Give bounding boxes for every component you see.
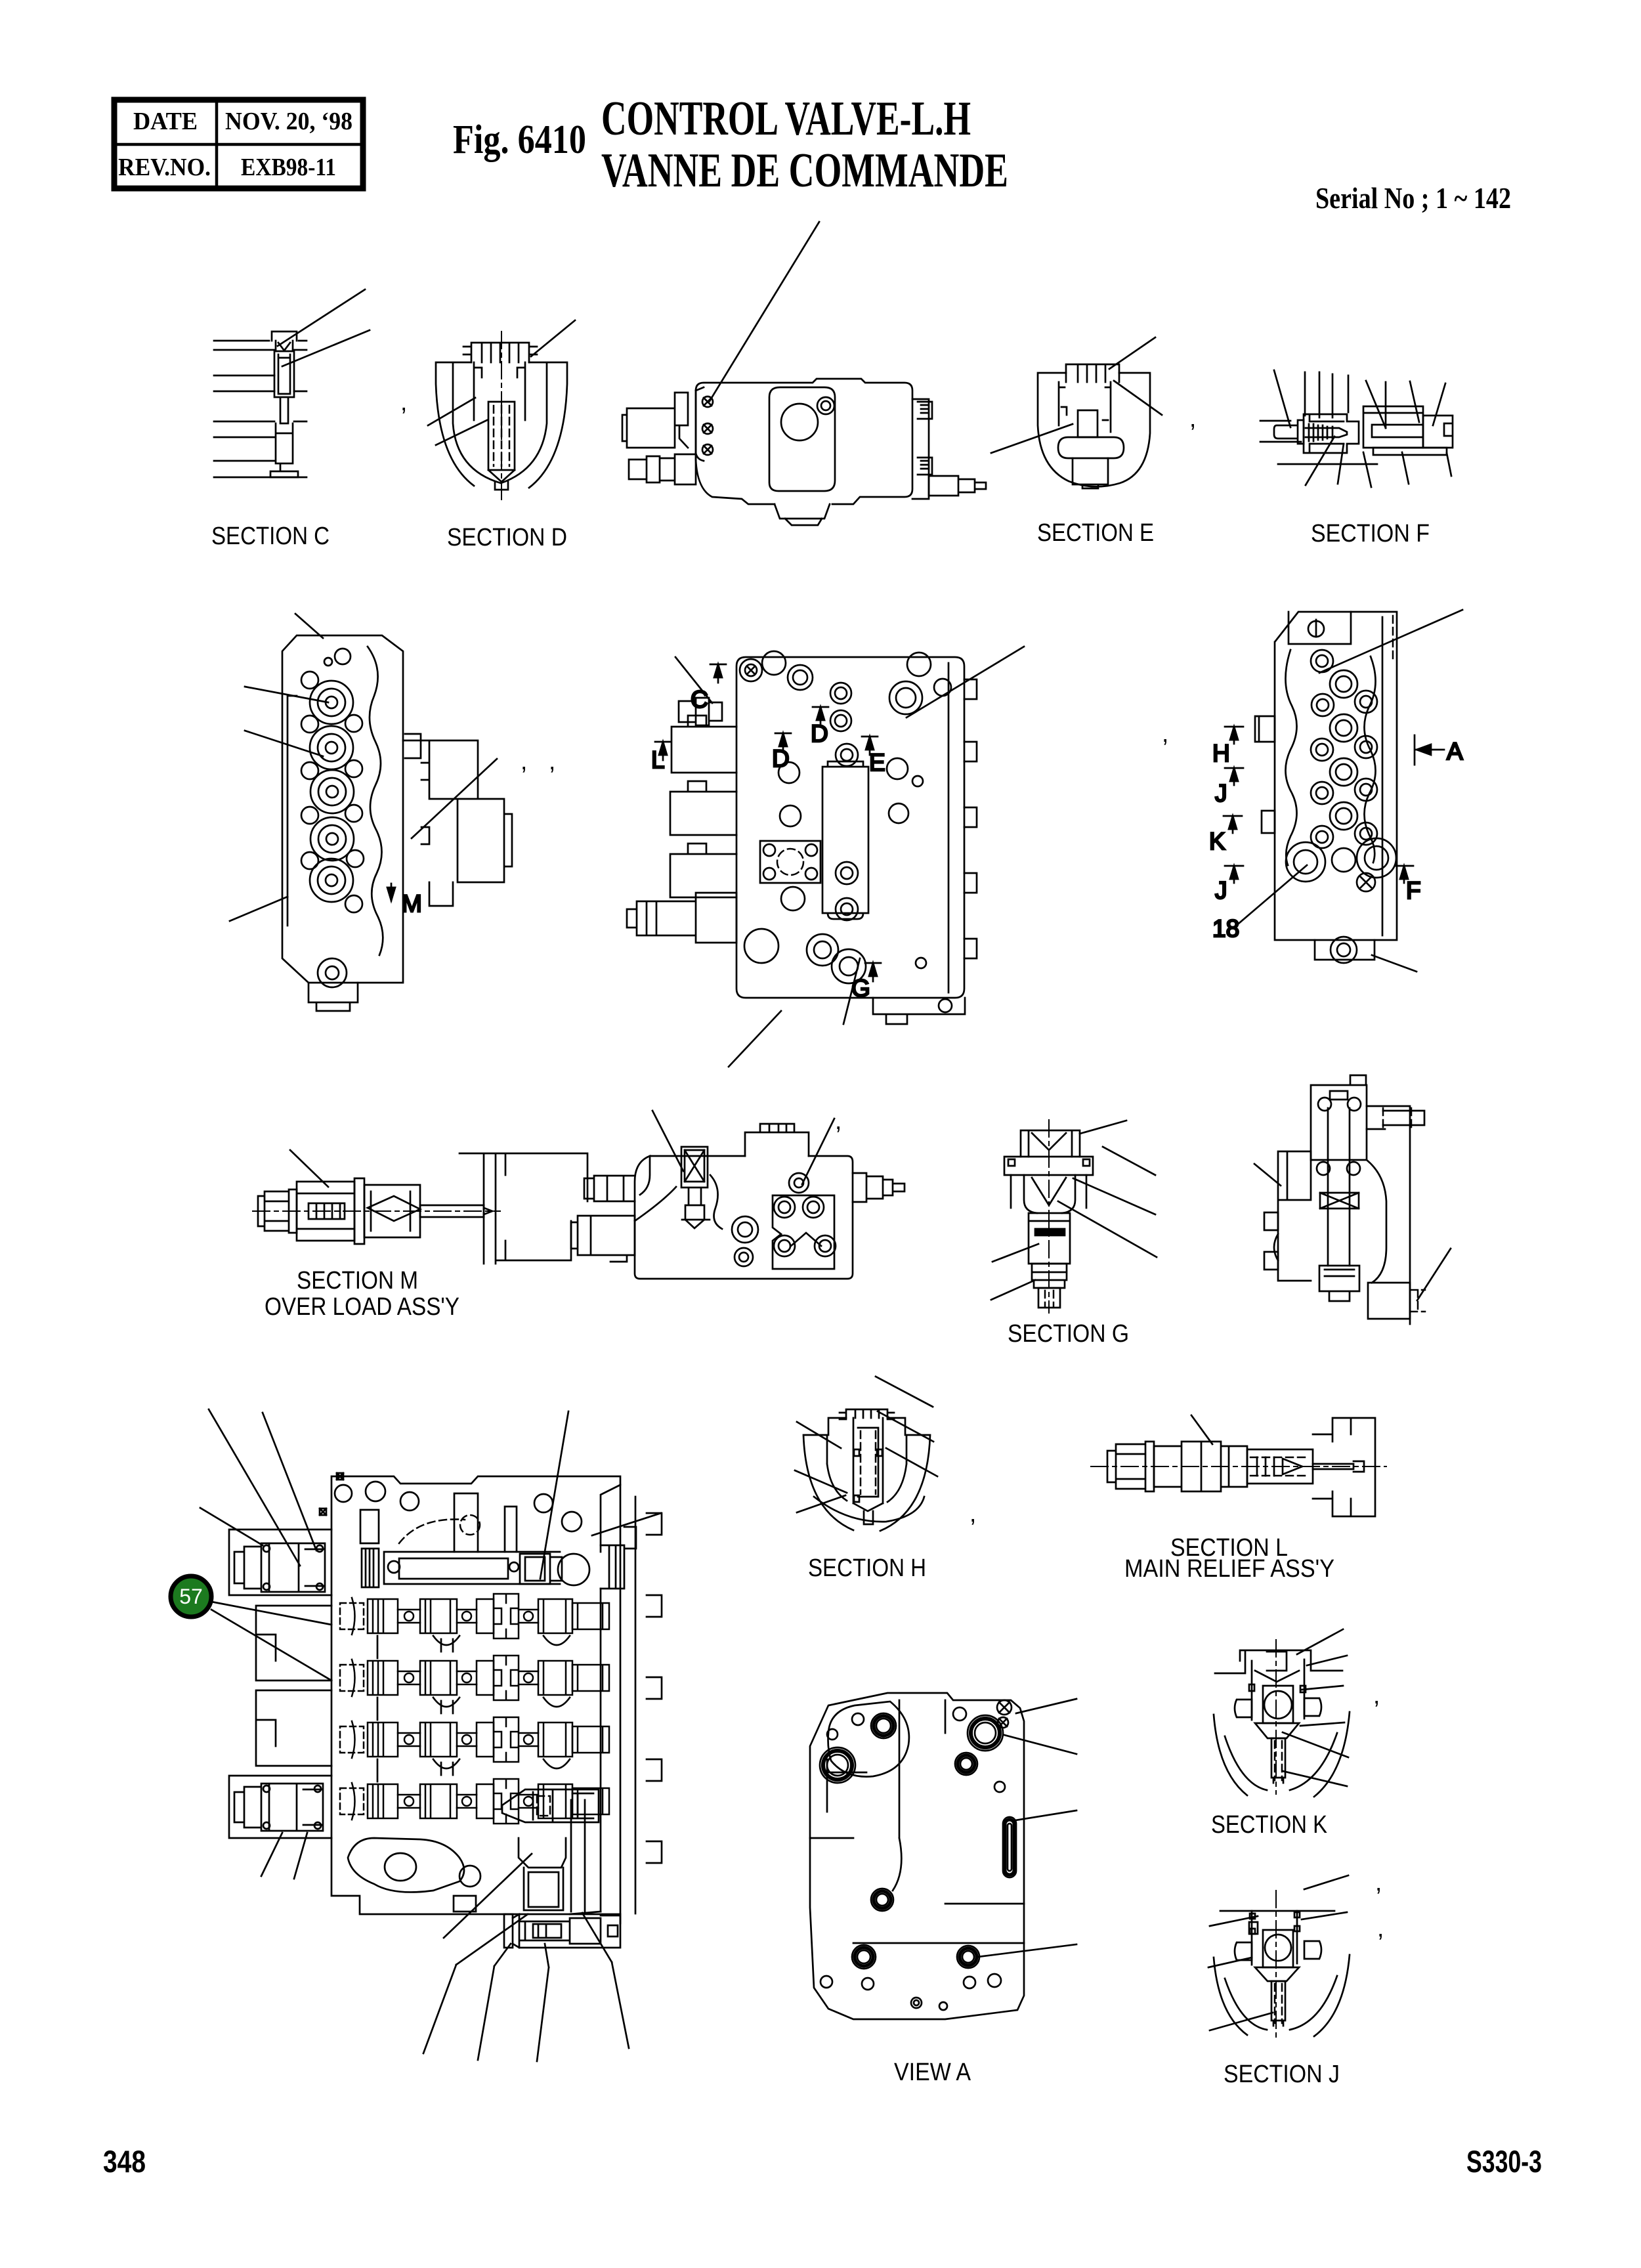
svg-text:E: E (869, 749, 885, 776)
svg-text:Fig. 6410: Fig. 6410 (453, 118, 586, 162)
svg-text:H: H (1212, 740, 1230, 767)
svg-text:,: , (400, 389, 407, 416)
svg-text:,: , (1373, 1682, 1380, 1709)
svg-text:VANNE DE COMMANDE: VANNE DE COMMANDE (601, 144, 1008, 198)
svg-text:,: , (1375, 1869, 1382, 1896)
svg-text:F: F (1406, 877, 1421, 904)
svg-text:348: 348 (103, 2144, 146, 2179)
svg-text:,: , (549, 748, 555, 775)
svg-text:EXB98-11: EXB98-11 (241, 154, 336, 181)
svg-text:SECTION C: SECTION C (211, 523, 330, 550)
svg-text:SECTION D: SECTION D (447, 524, 567, 551)
svg-text:OVER LOAD ASS'Y: OVER LOAD ASS'Y (265, 1293, 459, 1321)
svg-text:M: M (402, 890, 422, 917)
svg-text:57: 57 (179, 1585, 203, 1608)
svg-text:C: C (691, 686, 708, 713)
svg-text:,: , (970, 1500, 976, 1527)
svg-text:MAIN RELIEF ASS'Y: MAIN RELIEF ASS'Y (1124, 1555, 1334, 1583)
svg-text:SECTION K: SECTION K (1211, 1811, 1327, 1839)
svg-text:SECTION J: SECTION J (1224, 2061, 1340, 2088)
svg-text:SECTION M: SECTION M (297, 1267, 418, 1294)
svg-text:,: , (1162, 720, 1168, 747)
svg-text:SECTION F: SECTION F (1311, 520, 1430, 547)
svg-text:D: D (772, 745, 790, 772)
svg-text:A: A (1447, 738, 1463, 765)
svg-text:18: 18 (1212, 915, 1239, 942)
svg-text:D: D (811, 720, 828, 747)
svg-text:VIEW A: VIEW A (894, 2059, 971, 2086)
svg-text:SECTION E: SECTION E (1037, 519, 1154, 547)
svg-text:CONTROL VALVE-L.H: CONTROL VALVE-L.H (601, 92, 971, 146)
svg-text:,: , (1189, 405, 1196, 432)
svg-text:,: , (835, 1107, 842, 1134)
svg-text:G: G (851, 975, 870, 1002)
svg-text:SECTION G: SECTION G (1008, 1320, 1129, 1348)
svg-text:K: K (1209, 828, 1225, 855)
svg-text:NOV. 20, ‘98: NOV. 20, ‘98 (225, 108, 352, 135)
svg-text:,: , (521, 748, 527, 775)
svg-text:SECTION H: SECTION H (808, 1554, 926, 1582)
svg-text:REV.NO.: REV.NO. (118, 154, 211, 181)
svg-text:J: J (1215, 780, 1227, 807)
svg-text:L: L (651, 746, 665, 773)
svg-text:S330-3: S330-3 (1466, 2144, 1542, 2179)
svg-text:Serial No ; 1 ~ 142: Serial No ; 1 ~ 142 (1315, 181, 1511, 215)
svg-text:J: J (1215, 877, 1227, 904)
svg-text:DATE: DATE (133, 108, 198, 135)
svg-text:,: , (1377, 1915, 1384, 1942)
